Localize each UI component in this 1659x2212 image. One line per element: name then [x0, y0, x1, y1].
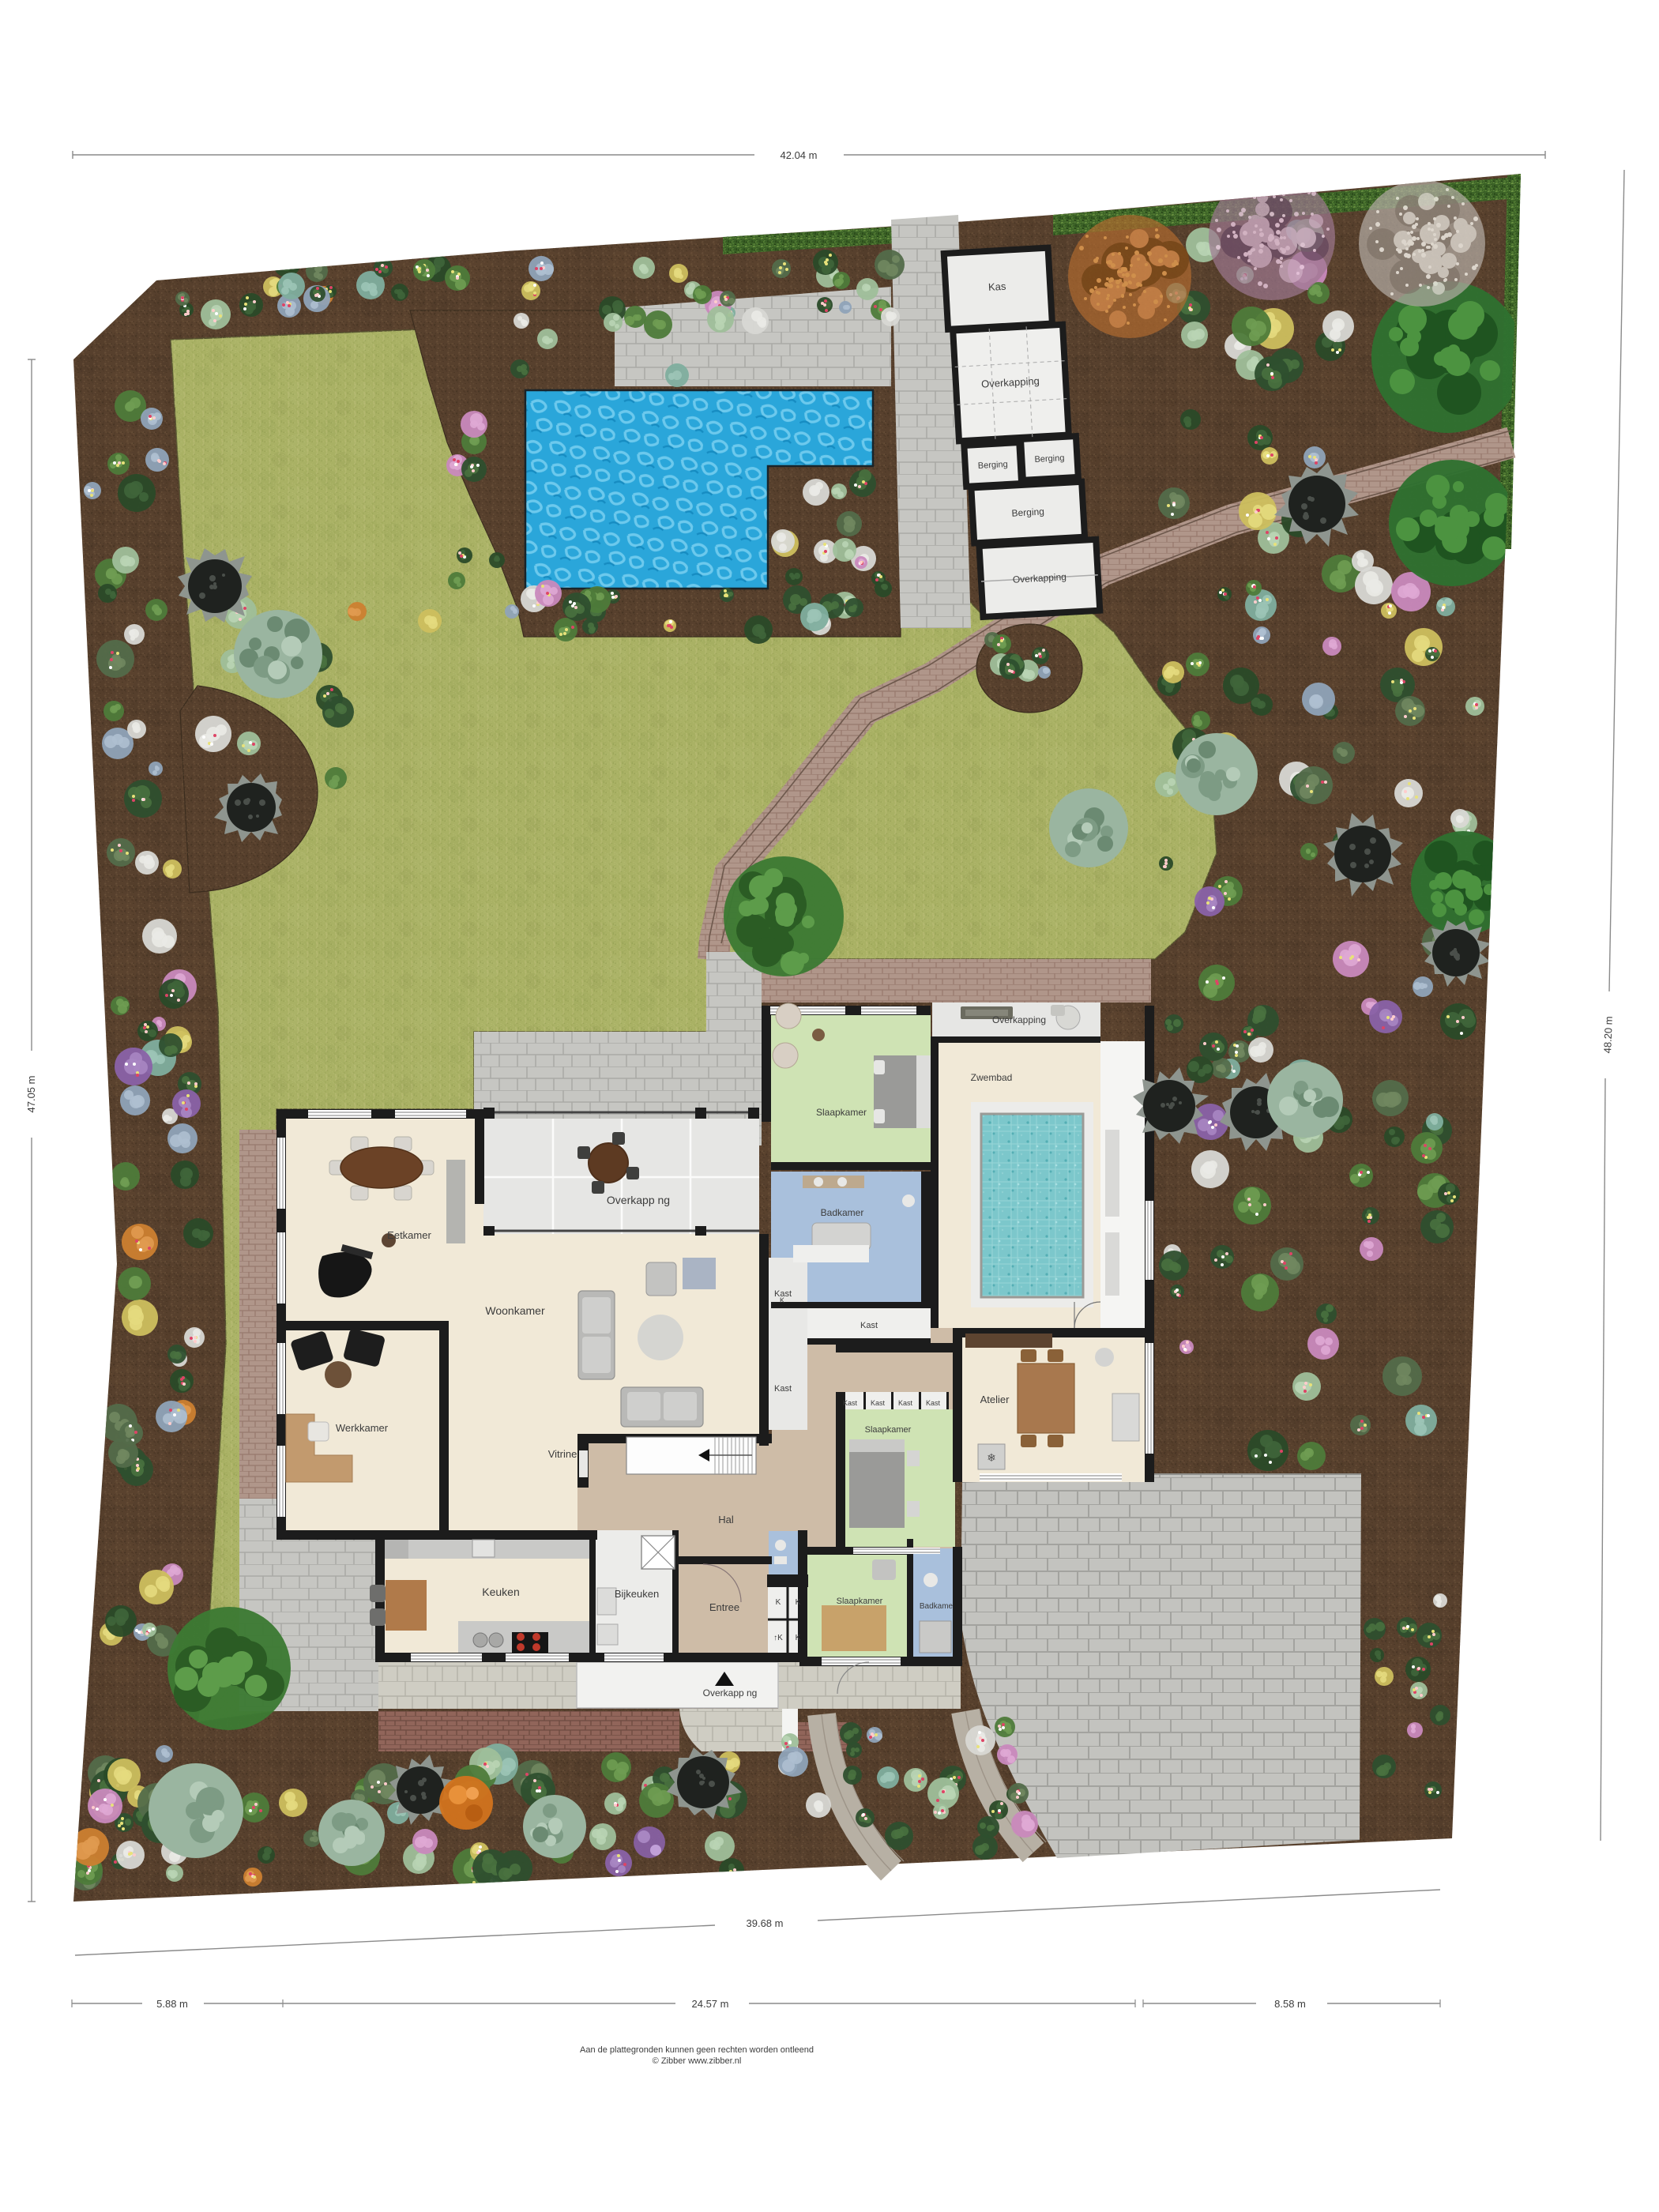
svg-text:Eetkamer: Eetkamer	[387, 1229, 431, 1241]
svg-text:Overkapping: Overkapping	[992, 1014, 1046, 1025]
svg-text:Berging: Berging	[1011, 506, 1044, 518]
svg-text:© Zibber www.zibber.nl: © Zibber www.zibber.nl	[653, 2056, 742, 2066]
svg-text:Woonkamer: Woonkamer	[485, 1304, 545, 1317]
svg-text:Werkkamer: Werkkamer	[336, 1422, 389, 1434]
svg-text:Kast: Kast	[926, 1399, 941, 1407]
svg-text:Badkame: Badkame	[920, 1602, 954, 1611]
svg-text:❄: ❄	[987, 1451, 996, 1464]
svg-text:Keuken: Keuken	[482, 1586, 519, 1598]
svg-text:24.57 m: 24.57 m	[692, 1998, 729, 2010]
svg-text:Slaapkamer: Slaapkamer	[816, 1107, 867, 1118]
svg-text:Slaapkamer: Slaapkamer	[865, 1425, 912, 1435]
svg-text:Berging: Berging	[978, 460, 1009, 471]
svg-text:Atelier: Atelier	[980, 1394, 1010, 1405]
svg-text:Kast: Kast	[843, 1399, 858, 1407]
svg-text:Zwembad: Zwembad	[971, 1072, 1013, 1083]
svg-text:K: K	[780, 1296, 784, 1304]
svg-text:Slaapkamer: Slaapkamer	[837, 1597, 883, 1606]
svg-text:K: K	[796, 1598, 801, 1607]
svg-text:Berging: Berging	[1034, 453, 1065, 465]
svg-text:42.04 m: 42.04 m	[781, 149, 818, 161]
svg-text:Overkapp ng: Overkapp ng	[703, 1687, 758, 1698]
svg-text:Kast: Kast	[898, 1399, 913, 1407]
svg-text:K: K	[796, 1634, 801, 1642]
svg-text:Kast: Kast	[860, 1321, 878, 1330]
svg-text:Vitrine: Vitrine	[548, 1448, 577, 1460]
svg-text:↑K: ↑K	[773, 1634, 783, 1642]
svg-text:39.68 m: 39.68 m	[747, 1917, 784, 1929]
svg-text:Kast: Kast	[871, 1399, 886, 1407]
svg-text:Hal: Hal	[718, 1514, 734, 1525]
svg-text:Badkamer: Badkamer	[821, 1207, 864, 1218]
svg-text:47.05 m: 47.05 m	[25, 1076, 37, 1113]
svg-text:5.88 m: 5.88 m	[156, 1998, 188, 2010]
svg-text:Kast: Kast	[774, 1384, 792, 1394]
svg-text:Bijkeuken: Bijkeuken	[615, 1588, 659, 1600]
svg-text:Kas: Kas	[988, 280, 1007, 293]
svg-text:Aan de plattegronden kunnen ge: Aan de plattegronden kunnen geen rechten…	[580, 2045, 814, 2055]
svg-text:Entree: Entree	[709, 1601, 739, 1613]
svg-text:8.58 m: 8.58 m	[1274, 1998, 1306, 2010]
svg-text:Overkapp ng: Overkapp ng	[607, 1194, 670, 1206]
svg-text:K: K	[776, 1598, 781, 1607]
svg-text:48.20 m: 48.20 m	[1601, 1016, 1615, 1053]
